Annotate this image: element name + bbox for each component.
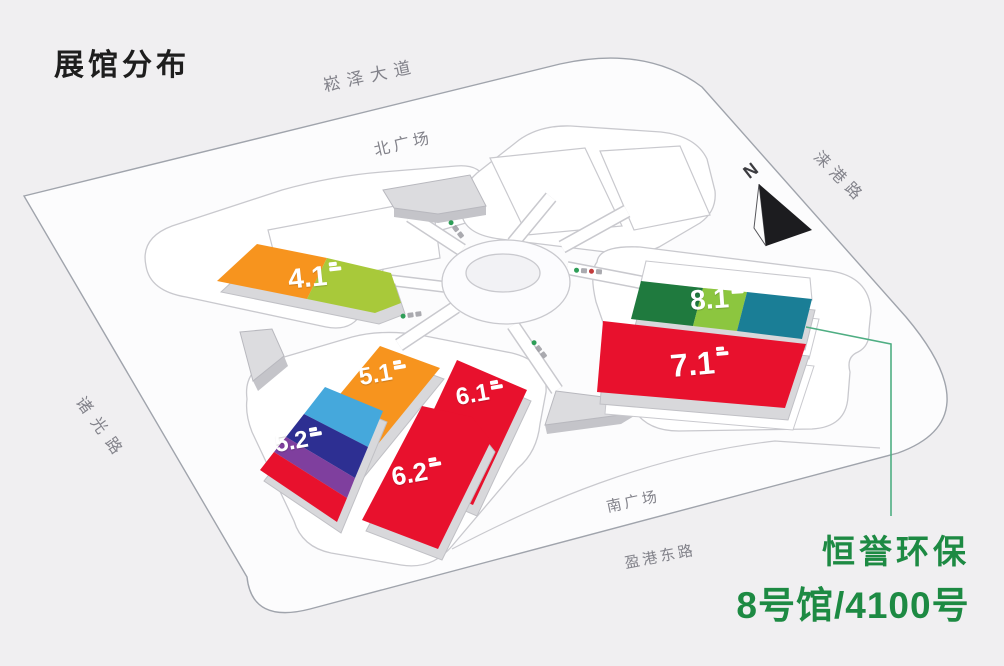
hall-mini-icon xyxy=(716,346,729,356)
central-ring-inner xyxy=(466,254,540,292)
exhibition-map-page: 展馆分布 崧泽大道 北广场 涞港路 诸光路 南广场 盈港东路 N 4.1 5.1… xyxy=(0,0,1004,666)
hall-mini-icon xyxy=(428,456,441,467)
annotation-exhibitor-name: 恒誉环保 xyxy=(822,525,970,573)
hall-mini-icon xyxy=(731,284,744,294)
annotation-booth-number: 8号馆/4100号 xyxy=(736,575,969,629)
hall-label-8-1: 8.1 xyxy=(689,281,745,317)
hall-number: 4.1 xyxy=(287,260,329,296)
page-title: 展馆分布 xyxy=(54,40,190,84)
hall-mini-icon xyxy=(490,379,503,390)
hall-label-4-1: 4.1 xyxy=(287,258,344,295)
hall-number: 8.1 xyxy=(689,282,730,317)
hall-number: 5.2 xyxy=(273,426,311,459)
hall-8-1-band-teal xyxy=(737,292,812,339)
hall-label-7-1: 7.1 xyxy=(669,343,731,385)
hall-number: 7.1 xyxy=(669,344,717,385)
hall-number: 5.1 xyxy=(357,359,395,392)
hall-number: 6.1 xyxy=(454,379,492,412)
hall-mini-icon xyxy=(329,261,342,271)
hall-number: 6.2 xyxy=(389,456,430,493)
hall-mini-icon xyxy=(393,359,406,370)
hall-mini-icon xyxy=(309,426,322,437)
